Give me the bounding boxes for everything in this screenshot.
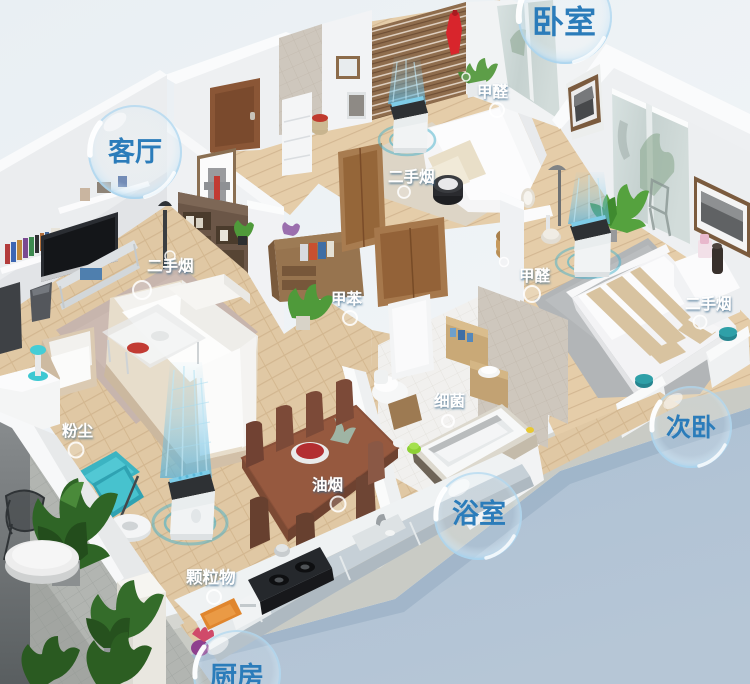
svg-text:客厅: 客厅 <box>108 136 162 167</box>
svg-text:颗粒物: 颗粒物 <box>186 567 236 587</box>
svg-text:甲苯: 甲苯 <box>331 289 363 308</box>
svg-text:甲醛: 甲醛 <box>477 82 509 101</box>
svg-text:次卧: 次卧 <box>666 414 716 442</box>
svg-text:浴室: 浴室 <box>452 498 506 529</box>
svg-text:卧室: 卧室 <box>532 4 596 40</box>
svg-text:厨房: 厨房 <box>210 662 264 684</box>
svg-text:二手烟: 二手烟 <box>685 294 732 313</box>
svg-text:细菌: 细菌 <box>434 391 465 410</box>
svg-text:粉尘: 粉尘 <box>62 421 94 440</box>
svg-text:二手烟: 二手烟 <box>388 167 435 186</box>
svg-text:二手烟: 二手烟 <box>147 256 194 275</box>
svg-text:油烟: 油烟 <box>312 475 343 494</box>
svg-text:甲醛: 甲醛 <box>519 266 551 285</box>
